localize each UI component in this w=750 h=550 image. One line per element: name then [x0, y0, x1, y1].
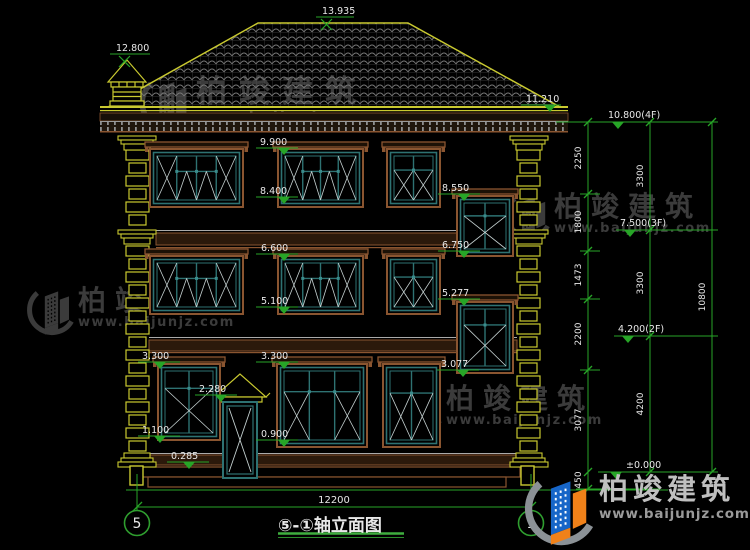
elevation-value: 7.500(3F) [620, 218, 666, 229]
baijun-logo-icon [520, 474, 594, 550]
elevation-value: 5.100 [261, 296, 288, 307]
roof [108, 23, 560, 107]
elevation-value: 3.300 [261, 351, 288, 362]
elevation-value: 6.600 [261, 243, 288, 254]
elevation-value: 2.280 [199, 384, 226, 395]
eave-fascia [100, 106, 568, 133]
dimension-label: 3077 [574, 409, 584, 432]
elevation-drawing: 2250180014732200307745033003300420010800… [0, 0, 750, 550]
dimension-label: 4200 [636, 392, 646, 415]
dimension-label: 10800 [698, 282, 708, 311]
elevation-value: 0.285 [171, 451, 198, 462]
window [382, 249, 445, 314]
dimension-label: 1800 [574, 210, 584, 233]
drawing-title: ⑤-①轴立面图 [278, 511, 382, 536]
elevation-value: 11.210 [526, 94, 559, 105]
window [145, 249, 248, 314]
elevation-value: 8.400 [260, 186, 287, 197]
brand-site: www.baijunjz.com [599, 506, 750, 522]
elevation-value: 0.900 [261, 429, 288, 440]
elevation-value: 13.935 [322, 6, 355, 17]
elevation-value: 3.300 [142, 351, 169, 362]
elevation-value: ±0.000 [626, 460, 661, 471]
axis-number: 5 [133, 516, 142, 532]
dimension-chains: 2250180014732200307745033003300420010800 [556, 118, 718, 493]
dimension-chain: 330033004200 [636, 118, 654, 476]
dimension-chain: 10800 [698, 118, 716, 476]
entry-door [223, 402, 257, 478]
window [145, 142, 248, 207]
dimension-label: 3300 [636, 164, 646, 187]
elevation-value: 8.550 [442, 183, 469, 194]
elevation-value: 9.900 [260, 137, 287, 148]
elevation-value: 3.077 [441, 359, 468, 370]
window [382, 142, 445, 207]
elevation-marker: 11.210 [521, 94, 561, 112]
dimension-label: 3300 [636, 271, 646, 294]
dimension-chain: 22501800147322003077450 [574, 118, 592, 493]
chimney [108, 60, 146, 106]
elevation-value: 12.800 [116, 43, 149, 54]
elevation-marker: 10.800(4F) [604, 110, 660, 129]
elevation-value: 5.277 [442, 288, 469, 299]
window [378, 357, 445, 447]
elevation-value: 4.200(2F) [618, 324, 664, 335]
dimension-label: 2250 [574, 146, 584, 169]
brand-logo: 柏竣建筑 www.baijunjz.com [520, 474, 750, 550]
elevation-value: 1.100 [142, 425, 169, 436]
dimension-label: 1473 [574, 264, 584, 287]
baijun-logo-icon [520, 474, 594, 550]
elevation-value: 10.800(4F) [608, 110, 660, 121]
dimension-label: 2200 [574, 322, 584, 345]
elevation-value: 6.750 [442, 240, 469, 251]
overall-width-dimension: 12200 [318, 495, 350, 506]
elevation-marker: 4.200(2F) [614, 324, 668, 343]
cad-canvas: 柏竣建筑 www.baijunjz.com 柏竣建筑 www.baijunjz.… [0, 0, 750, 550]
elevation-marker: 7.500(3F) [616, 218, 670, 237]
brand-name: 柏竣建筑 [599, 474, 750, 506]
